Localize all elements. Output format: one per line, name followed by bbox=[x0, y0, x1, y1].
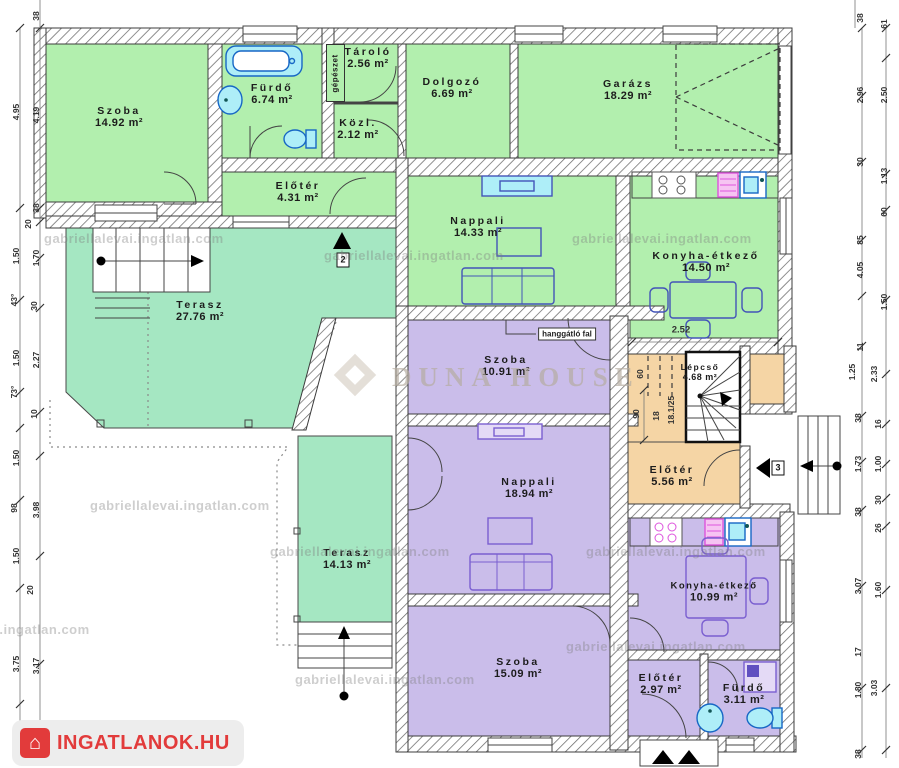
watermark-text: gabriellalevai.ingatlan.com bbox=[295, 672, 475, 687]
dim-label: 3.03 bbox=[869, 680, 879, 697]
dim-label: 1.13 bbox=[879, 168, 889, 185]
room-label-eloter-2: Előtér5.56 m² bbox=[650, 464, 695, 488]
dim-label: 73° bbox=[9, 386, 19, 399]
dim-label: 4.95 bbox=[11, 104, 21, 121]
bottom-stoop bbox=[640, 740, 718, 766]
room-label-garazs: Garázs18.29 m² bbox=[603, 78, 653, 102]
room-label-konyha-1: Konyha-étkező14.50 m² bbox=[652, 250, 759, 274]
terrace2-steps bbox=[298, 622, 392, 701]
dim-label: 1.50 bbox=[11, 450, 21, 467]
room-label-furdo-1: Fürdő6.74 m² bbox=[251, 82, 293, 106]
dim-label: 1.25 bbox=[847, 364, 857, 381]
sink-icon-2 bbox=[697, 704, 723, 732]
watermark-text: gabriellalevai.ingatlan.com bbox=[0, 622, 90, 637]
dim-label: 30 bbox=[29, 301, 39, 310]
dim-label: 38 bbox=[31, 11, 41, 20]
dim-label: 26 bbox=[873, 523, 883, 532]
tv-cabinet-1 bbox=[482, 176, 552, 196]
entrance-steps-right bbox=[756, 416, 842, 514]
dim-label: 38 bbox=[853, 749, 863, 758]
room-label-szoba-1: Szoba14.92 m² bbox=[95, 105, 143, 129]
room-label-nappali-2: Nappali18.94 m² bbox=[501, 476, 556, 500]
watermark-text: gabriellalevai.ingatlan.com bbox=[586, 544, 766, 559]
dim-label: 2.27 bbox=[31, 352, 41, 369]
dim-label: 1.60 bbox=[873, 582, 883, 599]
duna-house-wordmark: DUNA HOUSE bbox=[392, 362, 640, 393]
room-label-dolgozo: Dolgozó6.69 m² bbox=[423, 76, 482, 100]
dim-label: 4.05 bbox=[855, 262, 865, 279]
watermark-text: gabriellalevai.ingatlan.com bbox=[324, 248, 504, 263]
bathtub-icon bbox=[226, 46, 302, 76]
dim-label: 1.80 bbox=[853, 682, 863, 699]
dim-252: 2.52 bbox=[672, 325, 691, 336]
dim-label: 38 bbox=[31, 203, 41, 212]
dim-label: 43° bbox=[9, 294, 19, 307]
room-label-furdo-2: Fürdő3.11 m² bbox=[723, 682, 765, 706]
dim-label: 30 bbox=[873, 495, 883, 504]
dim-label: 10 bbox=[29, 409, 39, 418]
dim-label: 85 bbox=[855, 235, 865, 244]
dim-label: 1.50 bbox=[11, 350, 21, 367]
dim-label: 3.07 bbox=[853, 578, 863, 595]
house-icon: ⌂ bbox=[20, 728, 50, 758]
dim-label: 11 bbox=[855, 343, 865, 352]
watermark-text: gabriellalevai.ingatlan.com bbox=[44, 231, 224, 246]
dim-90: 90 bbox=[631, 409, 641, 418]
room-label-nappali-1: Nappali14.33 m² bbox=[450, 215, 505, 239]
toilet-icon-2 bbox=[747, 708, 782, 728]
floorplan-canvas: Szoba14.92 m² Fürdő6.74 m² Tároló2.56 m²… bbox=[0, 0, 899, 768]
dim-label: 17 bbox=[853, 647, 863, 656]
dim-label: 3.17 bbox=[31, 658, 41, 675]
dim-label: 1.50 bbox=[879, 294, 889, 311]
dim-label: 60 bbox=[879, 207, 889, 216]
watermark-text: gabriellalevai.ingatlan.com bbox=[566, 639, 746, 654]
dim-label: 2.50 bbox=[879, 87, 889, 104]
ingatlanok-logo: ⌂ INGATLANOK.HU bbox=[12, 720, 244, 766]
entrance-marker-3: 3 bbox=[772, 461, 785, 476]
dim-label: 1.50 bbox=[11, 248, 21, 265]
gepeszet-box: gépészet bbox=[326, 44, 345, 102]
dim-label: 20 bbox=[25, 585, 35, 594]
room-label-lepcso: Lépcső 4.68 m² bbox=[681, 362, 720, 382]
watermark-text: gabriellalevai.ingatlan.com bbox=[270, 544, 450, 559]
dim-label: 98 bbox=[9, 503, 19, 512]
sink-icon bbox=[218, 86, 242, 114]
room-label-konyha-2: Konyha-étkező 10.99 m² bbox=[670, 581, 757, 604]
dim-label: 2.33 bbox=[869, 366, 879, 383]
dim-label: 4.19 bbox=[31, 107, 41, 124]
room-label-tarolo: Tároló2.56 m² bbox=[344, 46, 391, 70]
dim-label: 1.00 bbox=[873, 456, 883, 473]
terrace-posts bbox=[97, 420, 300, 622]
dim-label: 61 bbox=[879, 19, 889, 28]
dim-label: 3.98 bbox=[31, 502, 41, 519]
room-label-eloter-3: Előtér2.97 m² bbox=[639, 672, 684, 696]
hanggatlo-fal-label: hanggátló fal bbox=[538, 328, 596, 341]
watermark-text: gabriellalevai.ingatlan.com bbox=[90, 498, 270, 513]
stair-ratio: 18.1/25 bbox=[666, 396, 676, 424]
dim-label: 2.96 bbox=[855, 87, 865, 104]
dim-label: 20 bbox=[23, 219, 33, 228]
dim-label: 38 bbox=[853, 507, 863, 516]
tv-cabinet-2 bbox=[478, 424, 542, 439]
dim-label: 16 bbox=[873, 419, 883, 428]
watermark-text: gabriellalevai.ingatlan.com bbox=[572, 231, 752, 246]
dim-label: 38 bbox=[853, 413, 863, 422]
dim-label: 1.70 bbox=[31, 250, 41, 267]
dim-label: 1.50 bbox=[11, 548, 21, 565]
room-label-eloter-1: Előtér4.31 m² bbox=[276, 180, 321, 204]
dim-label: 30 bbox=[855, 157, 865, 166]
dim-label: 1.73 bbox=[853, 456, 863, 473]
duna-house-logo bbox=[332, 352, 388, 402]
toilet-icon bbox=[284, 130, 316, 148]
dim-label: 3.75 bbox=[11, 656, 21, 673]
site-logo-text: INGATLANOK.HU bbox=[57, 732, 230, 755]
dim-label: 38 bbox=[855, 13, 865, 22]
room-label-kozl: Közl.2.12 m² bbox=[337, 117, 378, 141]
room-label-terasz-1: Terasz27.76 m² bbox=[176, 299, 224, 323]
stair-count: 18 bbox=[651, 411, 661, 420]
room-label-szoba-3: Szoba15.09 m² bbox=[494, 656, 542, 680]
